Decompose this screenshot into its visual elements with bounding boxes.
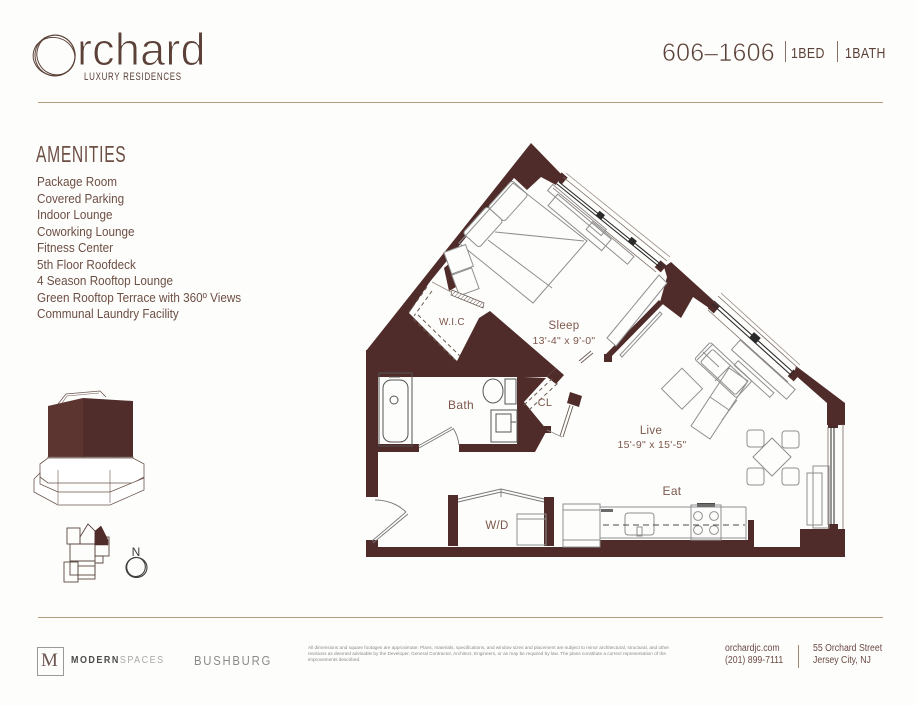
svg-text:Eat: Eat [663,484,682,498]
svg-text:Bath: Bath [448,398,474,412]
svg-text:Sleep: Sleep [549,320,580,332]
svg-text:N: N [132,545,141,559]
svg-text:CL: CL [538,397,553,409]
svg-text:15'-9" x 15'-5": 15'-9" x 15'-5" [617,439,686,451]
svg-text:13'-4" x 9'-0": 13'-4" x 9'-0" [533,335,596,347]
svg-text:W/D: W/D [485,520,508,532]
svg-text:W.I.C: W.I.C [439,317,465,328]
svg-text:Live: Live [640,425,662,437]
